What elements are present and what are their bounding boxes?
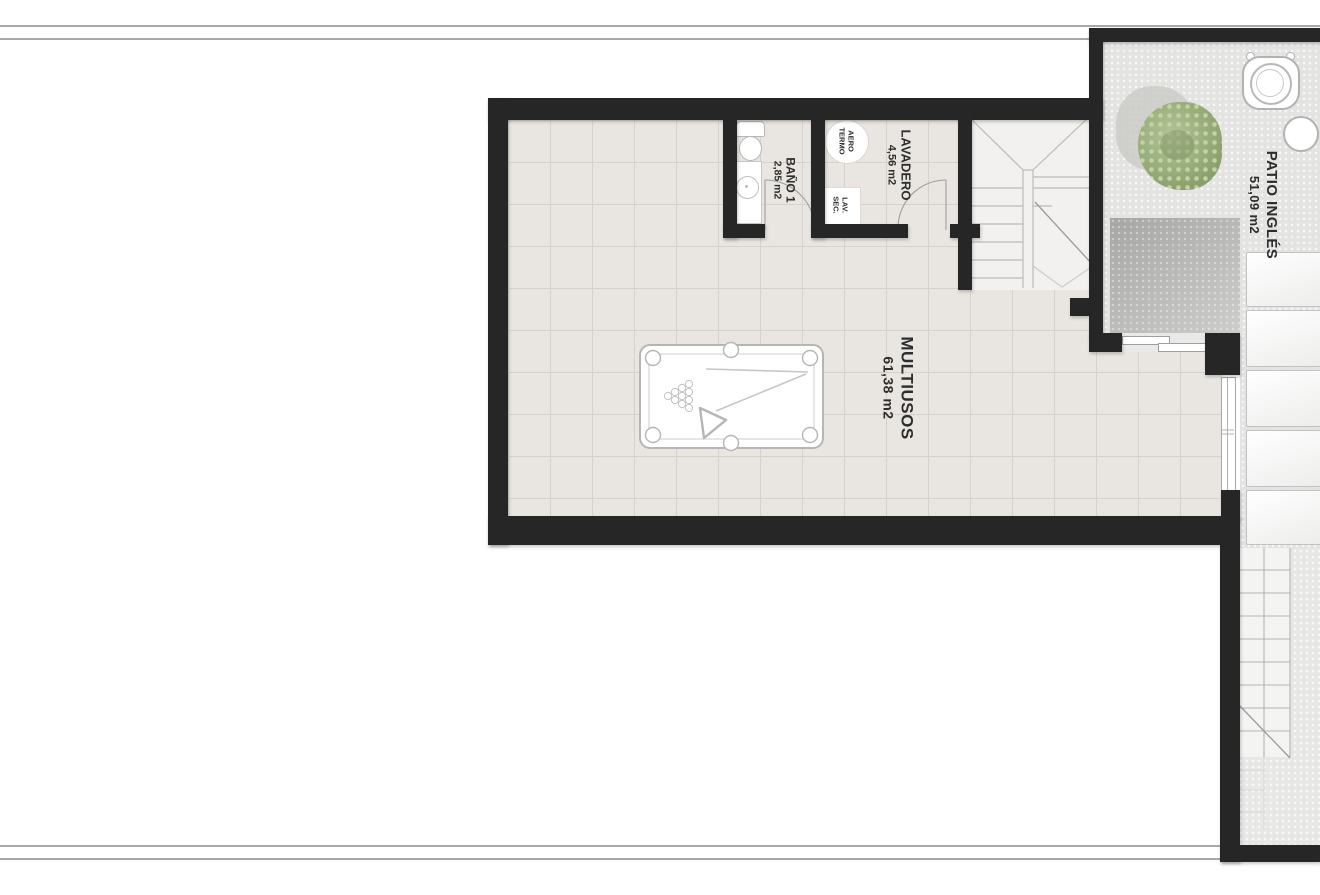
window-right xyxy=(1221,377,1236,492)
room-name: MULTIUSOS xyxy=(896,336,916,439)
planter-pot-icon xyxy=(1283,116,1319,152)
stairwell-floor xyxy=(967,120,1092,290)
wall-lavadero-bottom xyxy=(811,224,908,238)
label-aerotermo: AERO TERMO xyxy=(837,127,854,154)
page-border-top-outer xyxy=(0,25,1320,27)
wall-right-mid xyxy=(1221,490,1240,520)
page-border-bottom-outer xyxy=(0,845,1320,847)
toilet-bowl-icon xyxy=(739,136,762,161)
exterior-stairs-floor xyxy=(1238,548,1290,757)
wall-stairwell-left xyxy=(958,112,972,290)
planter-box xyxy=(1246,252,1320,307)
tree-inner-foliage xyxy=(1160,130,1194,160)
wall-bathroom-bottom xyxy=(723,224,765,238)
planter-box xyxy=(1246,430,1320,487)
wall-top-main xyxy=(488,98,1103,120)
patio-lower-pad xyxy=(1110,218,1240,333)
wall-left-main xyxy=(488,98,508,545)
fixture-label-line: LAV. xyxy=(840,196,849,214)
room-area: 61,38 m2 xyxy=(879,336,896,439)
wall-bathroom-right xyxy=(811,112,825,238)
page-border-bottom-inner xyxy=(0,858,1320,860)
room-label-multiusos: MULTIUSOS 61,38 m2 xyxy=(879,336,916,439)
toilet-tank-icon xyxy=(736,121,765,137)
fixture-label-line: AERO xyxy=(846,127,855,154)
jacuzzi-inner-ring xyxy=(1256,69,1284,97)
room-area: 51,09 m2 xyxy=(1246,151,1262,259)
wall-patio-top xyxy=(1089,28,1320,42)
wall-corner-topright xyxy=(1205,333,1240,375)
label-lavsec: LAV. SEC. xyxy=(831,196,848,214)
room-area: 4,56 m2 xyxy=(885,129,898,200)
floor-plan-sheet: MULTIUSOS 61,38 m2 BAÑO 1 2,85 m2 LAVADE… xyxy=(0,0,1320,895)
room-name: LAVADERO xyxy=(898,129,914,200)
room-area: 2,85 m2 xyxy=(771,157,784,202)
wall-patio-left xyxy=(1089,28,1103,338)
wall-bathroom-left xyxy=(723,112,737,238)
room-label-patio-ingles: PATIO INGLÉS 51,09 m2 xyxy=(1246,151,1280,259)
fixture-label-line: SEC. xyxy=(831,196,840,214)
planter-box xyxy=(1246,310,1320,367)
planter-box xyxy=(1246,490,1320,545)
room-name: BAÑO 1 xyxy=(783,157,797,202)
wall-patio-door-left xyxy=(1089,333,1122,352)
sink-drain-dot xyxy=(745,185,748,188)
room-label-lavadero: LAVADERO 4,56 m2 xyxy=(885,129,914,200)
fixture-label-line: TERMO xyxy=(837,127,846,154)
wall-bottom-main xyxy=(488,516,1240,545)
wall-bottom-right xyxy=(1220,845,1320,862)
multiusos-floor-right xyxy=(1103,352,1222,516)
room-label-bano: BAÑO 1 2,85 m2 xyxy=(771,157,798,202)
planter-box xyxy=(1246,370,1320,427)
wall-stair-stub xyxy=(1070,298,1089,316)
sliding-door-pane xyxy=(1158,343,1206,352)
wall-right-lower xyxy=(1220,545,1240,862)
room-name: PATIO INGLÉS xyxy=(1262,151,1280,259)
